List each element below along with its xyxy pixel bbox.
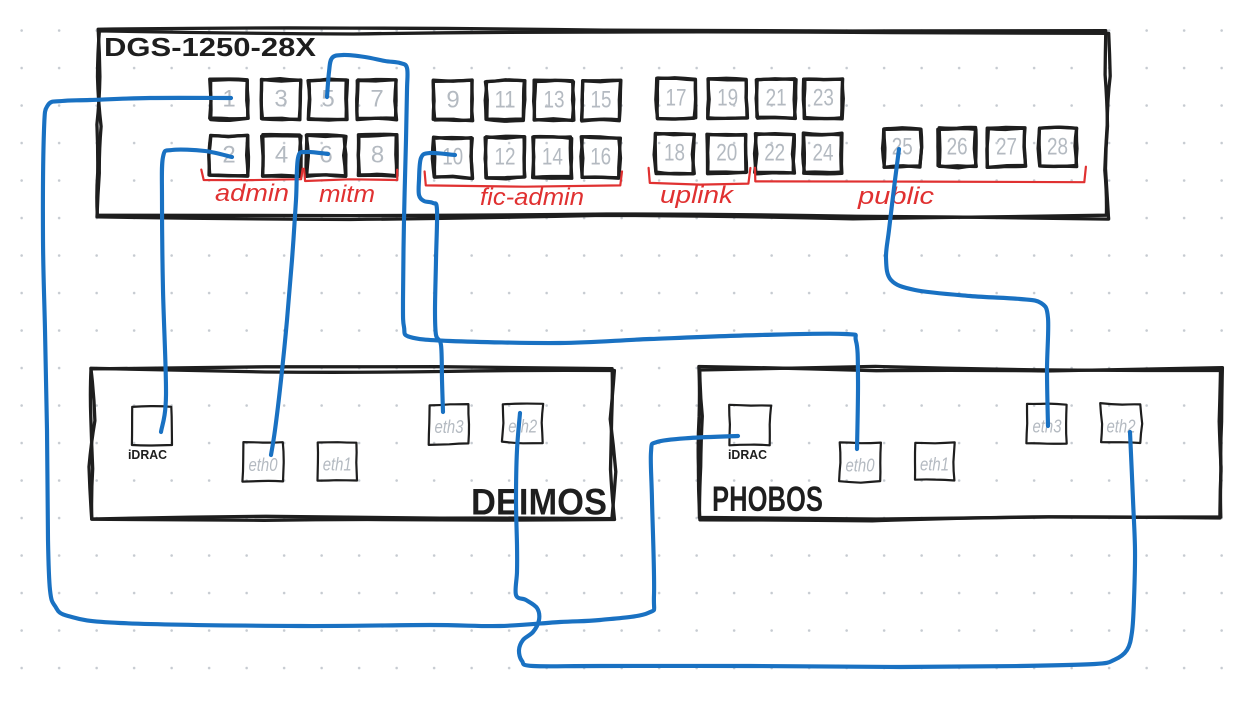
- svg-text:25: 25: [892, 134, 913, 161]
- svg-text:7: 7: [370, 86, 383, 113]
- svg-text:23: 23: [813, 85, 834, 112]
- svg-text:9: 9: [446, 87, 459, 114]
- svg-text:eth1: eth1: [920, 455, 949, 475]
- svg-text:13: 13: [544, 87, 565, 114]
- svg-text:mitm: mitm: [319, 181, 375, 208]
- svg-text:11: 11: [495, 87, 516, 114]
- svg-text:15: 15: [591, 87, 612, 114]
- svg-text:17: 17: [666, 85, 687, 112]
- svg-text:3: 3: [274, 86, 287, 113]
- svg-text:14: 14: [542, 144, 563, 171]
- svg-text:eth2: eth2: [508, 417, 537, 437]
- svg-text:10: 10: [442, 144, 463, 171]
- svg-text:eth1: eth1: [323, 455, 352, 475]
- svg-text:eth3: eth3: [435, 417, 464, 437]
- svg-text:eth0: eth0: [846, 456, 875, 476]
- svg-text:DGS-1250-28X: DGS-1250-28X: [104, 32, 317, 62]
- svg-text:admin: admin: [215, 180, 289, 207]
- svg-text:iDRAC: iDRAC: [128, 447, 168, 462]
- svg-text:18: 18: [664, 140, 685, 167]
- svg-text:fic-admin: fic-admin: [480, 184, 584, 211]
- svg-text:22: 22: [764, 140, 785, 167]
- svg-text:uplink: uplink: [660, 182, 735, 209]
- svg-text:DEIMOS: DEIMOS: [471, 481, 607, 523]
- svg-text:PHOBOS: PHOBOS: [712, 480, 823, 519]
- svg-text:iDRAC: iDRAC: [728, 447, 768, 462]
- svg-text:28: 28: [1047, 134, 1068, 161]
- svg-text:8: 8: [371, 142, 384, 169]
- svg-text:19: 19: [717, 85, 738, 112]
- svg-text:16: 16: [590, 144, 611, 171]
- svg-text:24: 24: [813, 140, 834, 167]
- svg-text:21: 21: [766, 85, 787, 112]
- svg-text:eth0: eth0: [249, 455, 278, 475]
- svg-text:27: 27: [996, 134, 1017, 161]
- svg-text:4: 4: [275, 142, 288, 169]
- svg-text:26: 26: [947, 134, 968, 161]
- svg-text:12: 12: [495, 144, 516, 171]
- svg-text:20: 20: [716, 140, 737, 167]
